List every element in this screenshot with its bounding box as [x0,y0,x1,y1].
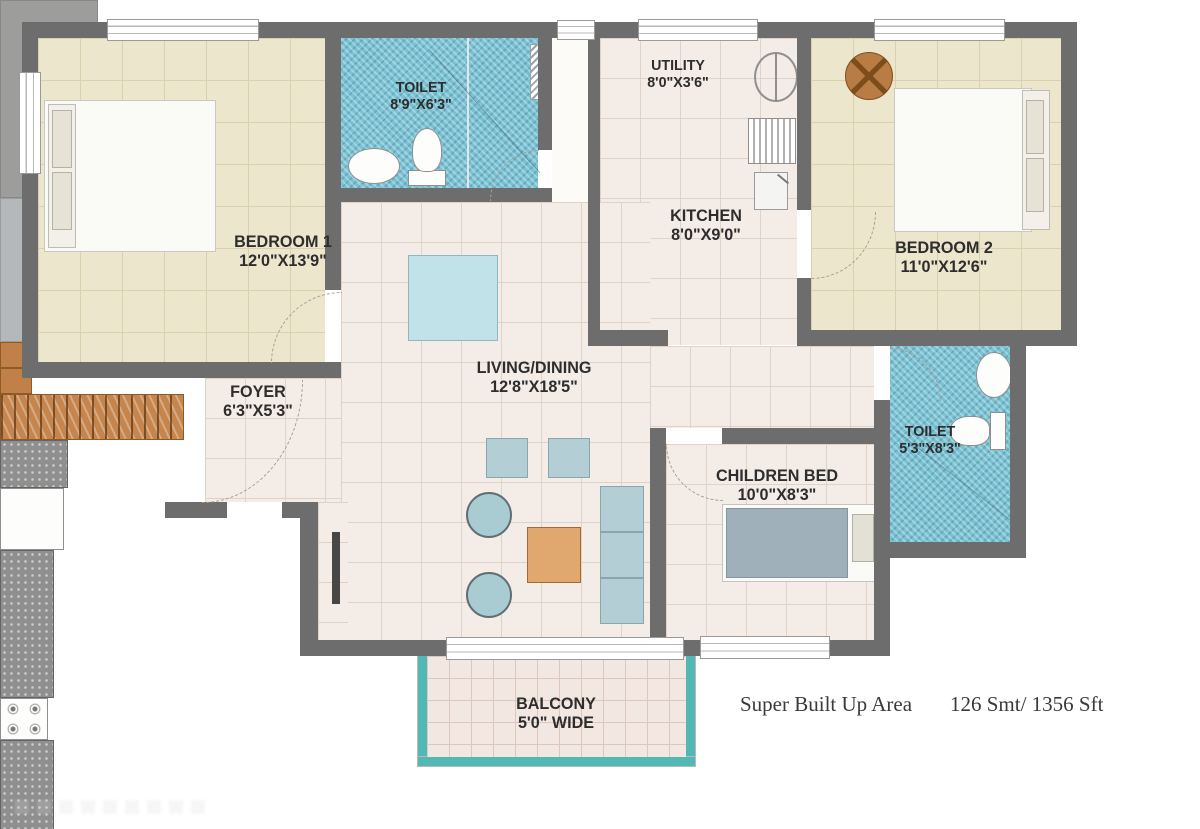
balcony-wall-right [686,648,695,766]
children-label: CHILDREN BED 10'0"X8'3" [716,466,838,504]
armchair-2-cushion [548,438,590,478]
children-window-bottom [700,636,830,659]
kitchen-counter-right [0,740,54,829]
kitchen-counter-left [0,550,54,698]
wall-kitchen-stub [588,330,668,346]
balcony-wall-bottom [418,757,695,766]
toilet2-washbasin-icon [976,352,1012,398]
bed2-pillow-1 [1026,100,1044,154]
wall-toilet1-right [538,38,552,150]
wall-toilet2-bottom [874,542,1026,558]
wc-tank-icon [408,170,446,186]
super-built-up-area-label: Super Built Up Area [740,692,912,717]
bed1-pillow-1 [52,110,72,168]
washbasin-icon [348,148,400,184]
living-name: LIVING/DINING [477,358,592,377]
wc-bowl-icon [412,128,442,172]
wall-foyer-bottom-2 [282,502,318,518]
wall-children-top [722,428,890,444]
toilet1-vanity-counter [0,440,68,488]
stove-icon [0,698,48,740]
watermark [15,800,210,814]
wall-living-left [300,502,318,656]
wall-top-3 [593,22,638,38]
bed1-pillow-2 [52,172,72,230]
bedroom2-label: BEDROOM 2 11'0"X12'6" [895,238,993,276]
bedroom1-name: BEDROOM 1 [234,232,332,251]
bedroom1-label: BEDROOM 1 12'0"X13'9" [234,232,332,270]
round-table-icon [845,52,893,100]
drainboard-icon [748,118,796,164]
bedroom1-dims: 12'0"X13'9" [234,251,332,270]
balcony-sliding-door [446,637,684,660]
wall-bedroom1-bottom [22,362,341,378]
utility-label: UTILITY 8'0"X3'6" [647,58,708,92]
washing-machine-icon [0,488,64,550]
bedroom1-wardrobe [0,394,184,440]
passage-vent-window [557,20,595,40]
toilet1-dims: 8'9"X6'3" [390,97,451,114]
bedroom2-dims: 11'0"X12'6" [895,257,993,276]
sofa-cushion-3 [600,578,644,624]
wall-children-right [874,428,890,656]
utility-dims: 8'0"X3'6" [647,75,708,92]
wall-children-left [650,428,666,656]
pouf-2 [466,572,512,618]
sofa-cushion-1 [600,486,644,532]
washing-machine-drum [754,52,798,102]
pouf-1 [466,492,512,538]
living-dims: 12'8"X18'5" [477,377,592,396]
kitchen-name: KITCHEN [670,206,742,225]
utility-name: UTILITY [647,58,708,75]
bedroom2-name: BEDROOM 2 [895,238,993,257]
bed2-pillow-2 [1026,158,1044,212]
wall-living-bottom [300,640,446,656]
utility-window-top [638,19,758,41]
foyer-label: FOYER 6'3"X5'3" [223,382,293,420]
wall-kitchen-right-upper [797,38,811,210]
toilet2-dims: 5'3"X8'3" [899,441,960,458]
bedroom1-window-left [19,72,41,174]
balcony-name: BALCONY [516,694,596,713]
super-built-up-area-value: 126 Smt/ 1356 Sft [950,692,1103,717]
kitchen-dims: 8'0"X9'0" [670,225,742,244]
toilet2-wc-tank-icon [990,412,1006,450]
living-label: LIVING/DINING 12'8"X18'5" [477,358,592,396]
armchair-1-cushion [486,438,528,478]
kitchen-label: KITCHEN 8'0"X9'0" [670,206,742,244]
children-name: CHILDREN BED [716,466,838,485]
coffee-table [527,527,581,583]
wall-bedroom2-bottom [797,330,1077,346]
children-bed-pillow [852,514,874,562]
balcony-dims: 5'0" WIDE [516,713,596,732]
toilet2-name: TOILET [899,424,960,441]
children-dims: 10'0"X8'3" [716,485,838,504]
sofa-cushion-2 [600,532,644,578]
wall-foyer-bottom-1 [165,502,227,518]
wall-right-exterior [1061,22,1077,346]
bedroom2-window-top [874,19,1005,41]
toilet2-label: TOILET 5'3"X8'3" [899,424,960,458]
wall-top-2 [257,22,557,38]
toilet1-label: TOILET 8'9"X6'3" [390,80,451,114]
children-bed-blanket [726,508,848,578]
floor-plan: BEDROOM 1 12'0"X13'9" TOILET 8'9"X6'3" U… [0,0,1200,829]
dining-table [408,255,498,341]
bedroom1-window-top [107,19,259,41]
balcony-wall-left [418,648,427,766]
foyer-name: FOYER [223,382,293,401]
toilet1-name: TOILET [390,80,451,97]
wall-passage-right [588,38,600,330]
bed2-sheet [894,88,1032,232]
balcony-label: BALCONY 5'0" WIDE [516,694,596,732]
wall-toilet2-right [1010,346,1026,558]
tv-icon [332,532,340,604]
living-corridor-floor [650,346,874,428]
shower-partition [467,38,469,188]
wall-top-4 [756,22,874,38]
foyer-dims: 6'3"X5'3" [223,401,293,420]
